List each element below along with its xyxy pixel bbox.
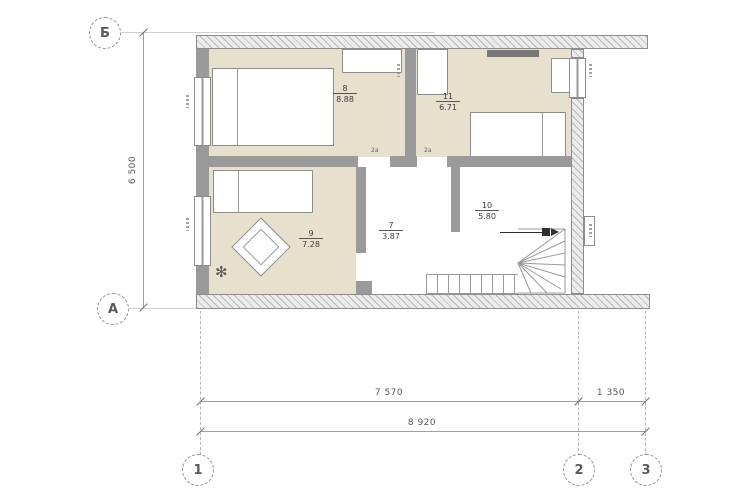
wardrobe-symbol-room-11 — [487, 50, 539, 57]
wall-left — [196, 146, 209, 196]
chair-inner-line — [243, 229, 280, 266]
grid-marker-label: 3 — [641, 463, 650, 478]
wall-stub — [356, 281, 372, 294]
bed-symbol-room-8 — [212, 68, 334, 146]
room-label-10: 10 5.80 — [470, 201, 504, 221]
grid-marker-label: 1 — [193, 463, 202, 478]
bed-symbol-room-9 — [213, 170, 313, 213]
staircase-winder-steps — [517, 227, 568, 294]
bed-symbol-room-11 — [470, 112, 566, 159]
wall-corridor-room-10 — [451, 167, 460, 232]
grid-marker-row-a: А — [97, 293, 129, 325]
dimension-line-row-2 — [200, 431, 645, 432]
wall-dimension-mark — [589, 224, 592, 237]
bed-pillow — [214, 171, 239, 212]
plant-symbol: ✻ — [215, 265, 228, 280]
floor-plan-canvas: 6 500 Б А 1 2 3 7 570 1 350 8 920 ✻ — [0, 0, 755, 502]
grid-marker-label: Б — [100, 26, 110, 41]
stair-direction-line — [500, 232, 542, 233]
room-label-9: 9 7.28 — [294, 229, 328, 249]
dimension-label-1350: 1 350 — [581, 388, 641, 398]
room-number: 7 — [374, 221, 408, 230]
window-left-upper — [194, 77, 211, 146]
wall-left — [196, 266, 209, 294]
bed-pillow — [542, 113, 565, 158]
vertical-dimension-label: 6 500 — [128, 148, 140, 192]
axis-line-col-1 — [200, 311, 201, 455]
dimension-label-7570: 7 570 — [359, 388, 419, 398]
room-label-11: 11 6.71 — [431, 92, 465, 112]
wall-dimension-mark — [589, 64, 592, 77]
wall-between-room-8-11 — [405, 49, 416, 167]
room-label-8: 8 8.88 — [328, 84, 362, 104]
room-area: 7.28 — [299, 238, 323, 249]
staircase-straight-steps — [426, 274, 518, 294]
wall-dimension-mark — [186, 95, 189, 108]
axis-line-row-b — [120, 32, 435, 33]
room-number: 10 — [470, 201, 504, 210]
room-number: 8 — [328, 84, 362, 93]
axis-line-col-2 — [578, 311, 579, 456]
room-area: 5.80 — [475, 210, 499, 221]
room-area: 8.88 — [333, 93, 357, 104]
grid-marker-col-2: 2 — [563, 454, 595, 486]
wall-interior-horizontal — [390, 156, 417, 167]
window-left-lower — [194, 196, 211, 266]
grid-marker-col-1: 1 — [182, 454, 214, 486]
wall-right — [571, 49, 584, 58]
axis-line-col-3 — [645, 311, 646, 456]
wall-interior-horizontal — [447, 156, 571, 167]
window-right — [569, 58, 586, 98]
grid-marker-col-3: 3 — [630, 454, 662, 486]
room-area: 6.71 — [436, 101, 460, 112]
dimension-label-8920: 8 920 — [392, 418, 452, 428]
wall-left — [196, 49, 209, 77]
room-area: 3.87 — [379, 230, 403, 241]
wall-room-9-corridor — [356, 167, 366, 253]
wall-top — [196, 35, 648, 49]
door-label: 2а — [371, 147, 379, 154]
vertical-dimension-line — [143, 32, 144, 308]
stair-direction-start — [542, 228, 550, 236]
grid-marker-row-b: Б — [89, 17, 121, 49]
wall-dimension-mark — [186, 218, 189, 231]
stair-direction-arrow — [551, 228, 559, 236]
wall-bottom — [196, 294, 650, 309]
room-label-7: 7 3.87 — [374, 221, 408, 241]
room-number: 9 — [294, 229, 328, 238]
door-label: 2а — [424, 147, 432, 154]
room-number: 11 — [431, 92, 465, 101]
closet-symbol-room-8 — [342, 49, 402, 73]
grid-marker-label: А — [108, 302, 118, 317]
wall-interior-horizontal — [209, 156, 358, 167]
bed-pillow — [213, 69, 238, 145]
closet-symbol-room-11-left — [417, 49, 448, 95]
grid-marker-label: 2 — [574, 463, 583, 478]
wall-dimension-mark — [397, 64, 400, 77]
wall-right — [571, 98, 584, 294]
